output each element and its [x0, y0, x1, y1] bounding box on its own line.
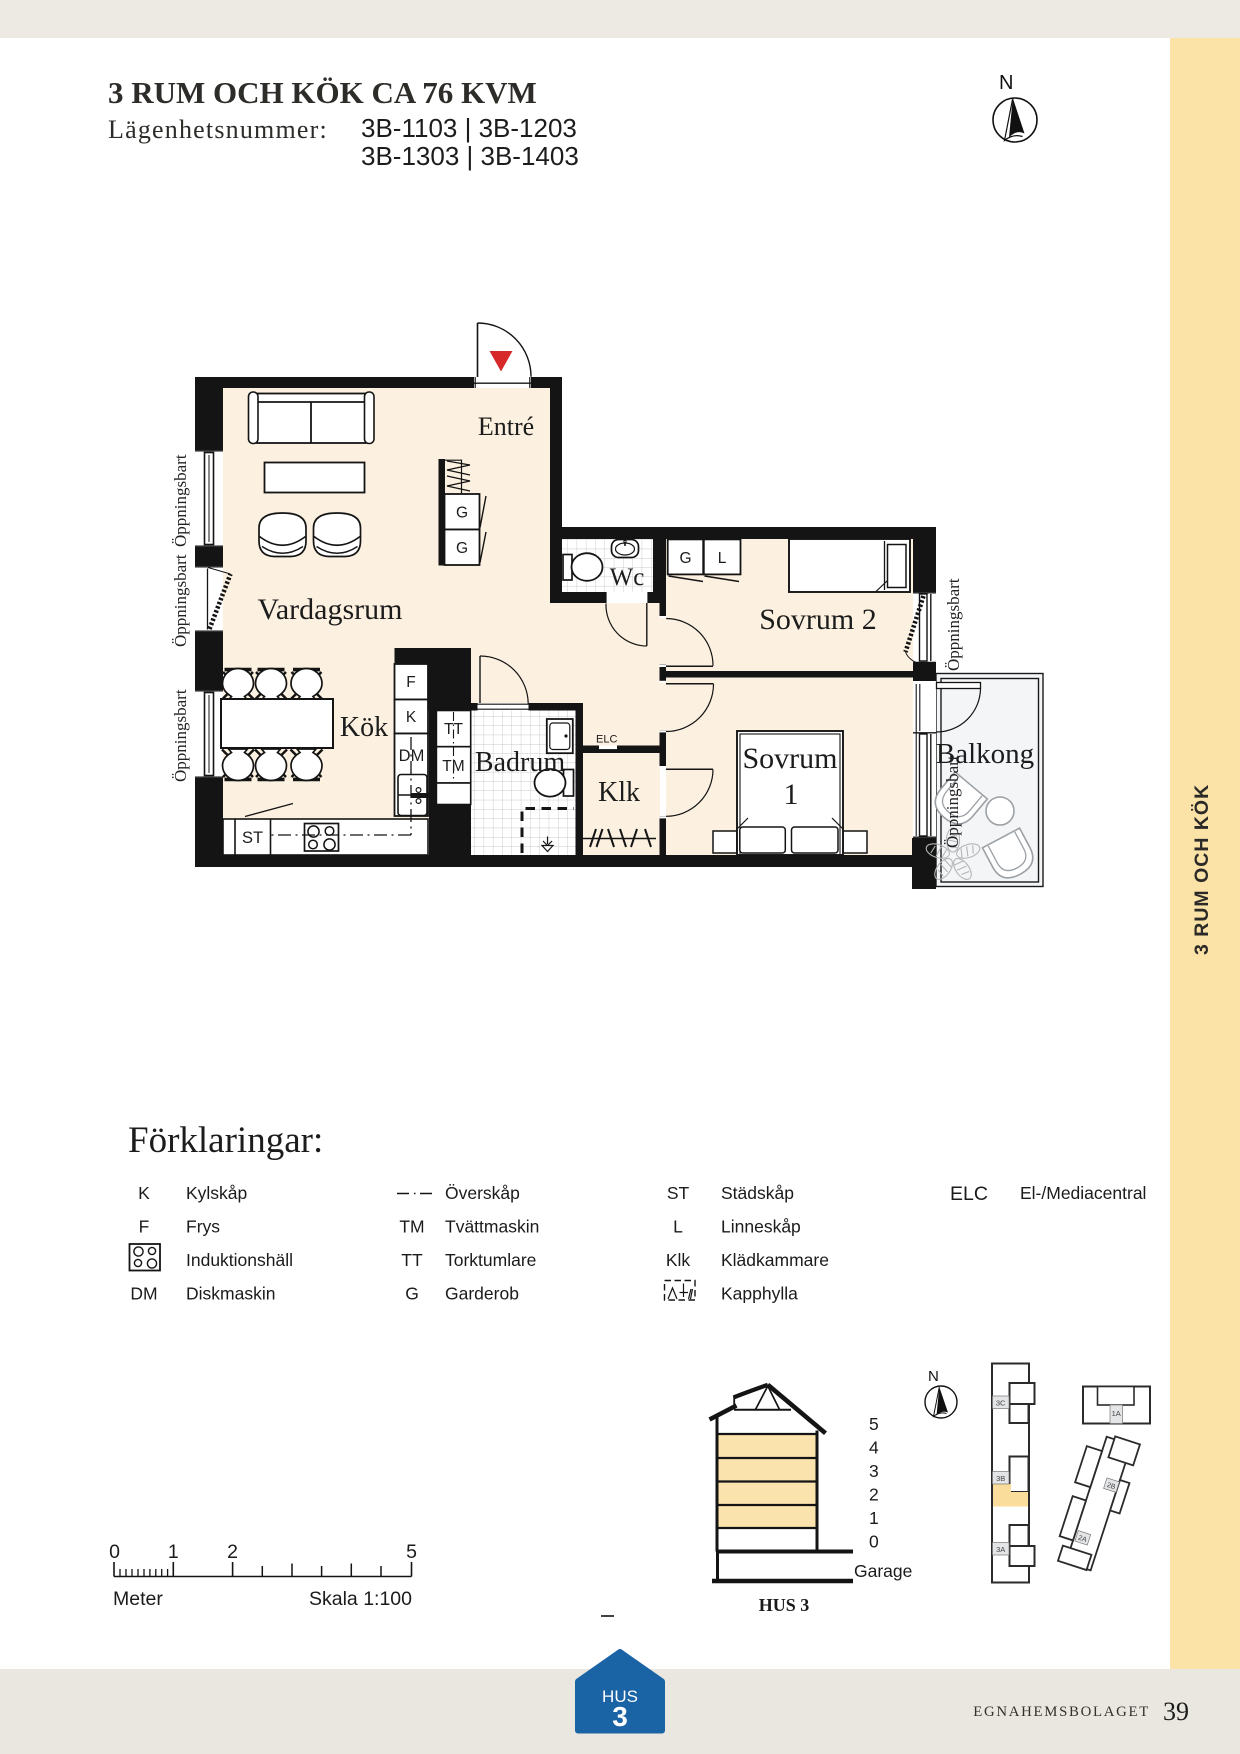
svg-text:F: F — [139, 1217, 150, 1237]
svg-text:TT: TT — [401, 1250, 423, 1270]
svg-text:1: 1 — [784, 778, 799, 811]
svg-text:Linneskåp: Linneskåp — [721, 1217, 801, 1237]
svg-text:Öppningsbart: Öppningsbart — [944, 578, 963, 671]
svg-text:1: 1 — [869, 1508, 879, 1528]
svg-text:EGNAHEMSBOLAGET: EGNAHEMSBOLAGET — [973, 1704, 1150, 1720]
svg-text:Klk: Klk — [598, 777, 640, 808]
svg-text:N: N — [999, 72, 1013, 94]
svg-text:Sovrum: Sovrum — [742, 742, 837, 775]
svg-text:Kök: Kök — [340, 712, 388, 743]
svg-text:Klädkammare: Klädkammare — [721, 1250, 829, 1270]
svg-text:2: 2 — [869, 1485, 879, 1505]
svg-text:3C: 3C — [996, 1399, 1006, 1408]
svg-text:Överskåp: Överskåp — [445, 1183, 520, 1203]
svg-text:Tvättmaskin: Tvättmaskin — [445, 1217, 539, 1237]
svg-text:Badrum: Badrum — [475, 747, 565, 778]
svg-text:Frys: Frys — [186, 1217, 220, 1237]
svg-text:G: G — [679, 550, 691, 567]
svg-text:Sovrum 2: Sovrum 2 — [759, 603, 877, 636]
svg-text:TM: TM — [399, 1217, 424, 1237]
svg-text:DM: DM — [399, 747, 425, 765]
svg-text:G: G — [456, 505, 468, 522]
svg-text:TT: TT — [444, 721, 463, 738]
svg-text:Garage: Garage — [854, 1561, 912, 1581]
svg-text:Städskåp: Städskåp — [721, 1183, 794, 1203]
svg-text:Klk: Klk — [666, 1250, 691, 1270]
svg-text:Diskmaskin: Diskmaskin — [186, 1284, 275, 1304]
svg-text:2: 2 — [227, 1541, 238, 1563]
svg-text:3A: 3A — [996, 1545, 1005, 1554]
svg-text:0: 0 — [109, 1541, 120, 1563]
svg-text:Öppningsbart: Öppningsbart — [171, 554, 190, 647]
svg-text:G: G — [405, 1284, 419, 1304]
svg-text:HUS 3: HUS 3 — [759, 1595, 810, 1615]
svg-text:Vardagsrum: Vardagsrum — [258, 593, 403, 626]
svg-text:3B-1303 | 3B-1403: 3B-1303 | 3B-1403 — [361, 141, 579, 171]
svg-text:4: 4 — [869, 1438, 879, 1458]
svg-text:Skala 1:100: Skala 1:100 — [309, 1588, 412, 1610]
svg-text:0: 0 — [869, 1532, 879, 1552]
svg-text:Entré: Entré — [478, 412, 534, 441]
svg-text:Wc: Wc — [610, 564, 645, 591]
svg-text:L: L — [673, 1217, 683, 1237]
svg-text:F: F — [406, 674, 415, 691]
svg-text:ELC: ELC — [596, 734, 617, 746]
svg-text:3 RUM OCH KÖK: 3 RUM OCH KÖK — [1190, 784, 1213, 955]
svg-text:G: G — [456, 540, 468, 557]
svg-text:Öppningsbart: Öppningsbart — [171, 689, 190, 782]
svg-text:ST: ST — [667, 1183, 690, 1203]
svg-text:L: L — [718, 550, 727, 567]
svg-text:Förklaringar:: Förklaringar: — [128, 1120, 323, 1161]
svg-text:N: N — [928, 1368, 939, 1385]
svg-text:Öppningsbart: Öppningsbart — [943, 755, 962, 848]
svg-text:Kylskåp: Kylskåp — [186, 1183, 247, 1203]
svg-text:3: 3 — [612, 1701, 628, 1732]
svg-text:3B: 3B — [996, 1474, 1005, 1483]
svg-text:ELC: ELC — [950, 1183, 988, 1205]
svg-text:1: 1 — [168, 1541, 179, 1563]
svg-text:3B-1103 | 3B-1203: 3B-1103 | 3B-1203 — [361, 113, 577, 143]
svg-text:3: 3 — [869, 1461, 879, 1481]
svg-text:ST: ST — [242, 829, 263, 847]
svg-text:TM: TM — [442, 758, 464, 775]
svg-text:1A: 1A — [1112, 1409, 1121, 1418]
svg-text:Induktionshäll: Induktionshäll — [186, 1250, 293, 1270]
svg-text:Lägenhetsnummer:: Lägenhetsnummer: — [108, 115, 328, 144]
svg-text:5: 5 — [869, 1414, 879, 1434]
svg-text:Torktumlare: Torktumlare — [445, 1250, 536, 1270]
svg-text:DM: DM — [130, 1284, 157, 1304]
svg-text:Öppningsbart: Öppningsbart — [171, 454, 190, 547]
svg-text:39: 39 — [1163, 1697, 1189, 1726]
svg-text:K: K — [138, 1183, 150, 1203]
svg-text:El-/Mediacentral: El-/Mediacentral — [1020, 1183, 1146, 1203]
svg-text:Kapphylla: Kapphylla — [721, 1284, 798, 1304]
svg-text:5: 5 — [406, 1541, 417, 1563]
svg-text:Garderob: Garderob — [445, 1284, 519, 1304]
svg-text:3 RUM OCH KÖK CA 76 KVM: 3 RUM OCH KÖK CA 76 KVM — [108, 75, 537, 110]
svg-text:K: K — [406, 709, 417, 726]
svg-text:Meter: Meter — [113, 1588, 163, 1610]
